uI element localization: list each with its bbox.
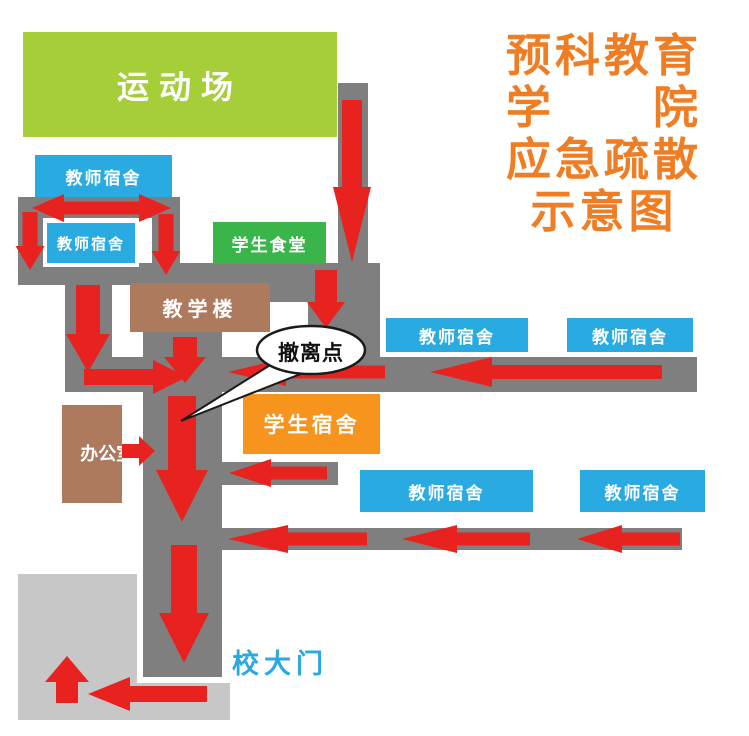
building-teacher-dorm-1: 教师宿舍 [35,155,172,197]
road-central-vertical [143,332,222,677]
building-student-canteen: 学生食堂 [213,222,326,264]
building-office: 办公室 [62,405,122,503]
open-area-strip [18,683,230,720]
building-office-label: 办公室 [80,440,103,469]
road-top-right-vertical [338,83,368,268]
map-title-line-1: 预科教育 [478,30,730,82]
map-title: 预科教育 学 院 应急疏散 示意图 [478,30,730,238]
building-sports-field: 运动场 [23,32,337,137]
building-teacher-dorm-5: 教师宿舍 [360,470,533,512]
evacuation-point-label: 撤离点 [259,337,363,367]
evacuation-map: 运动场 教师宿舍 教师宿舍 学生食堂 教学楼 教师宿舍 教师宿舍 学生宿舍 办公… [0,0,749,736]
building-teacher-dorm-4: 教师宿舍 [567,318,693,352]
building-teacher-dorm-3: 教师宿舍 [386,318,528,352]
map-title-line-4: 示意图 [478,186,730,238]
building-student-dorm: 学生宿舍 [243,394,380,454]
road-lower-corridor-short [220,462,338,485]
school-gate-label: 校大门 [232,642,328,681]
building-teaching-building: 教学楼 [130,283,270,332]
map-title-line-3: 应急疏散 [478,134,730,186]
building-teacher-dorm-2: 教师宿舍 [43,219,139,267]
road-lower-corridor-long [220,528,682,550]
map-title-line-2: 学 院 [478,82,730,134]
building-teacher-dorm-6: 教师宿舍 [580,470,705,512]
